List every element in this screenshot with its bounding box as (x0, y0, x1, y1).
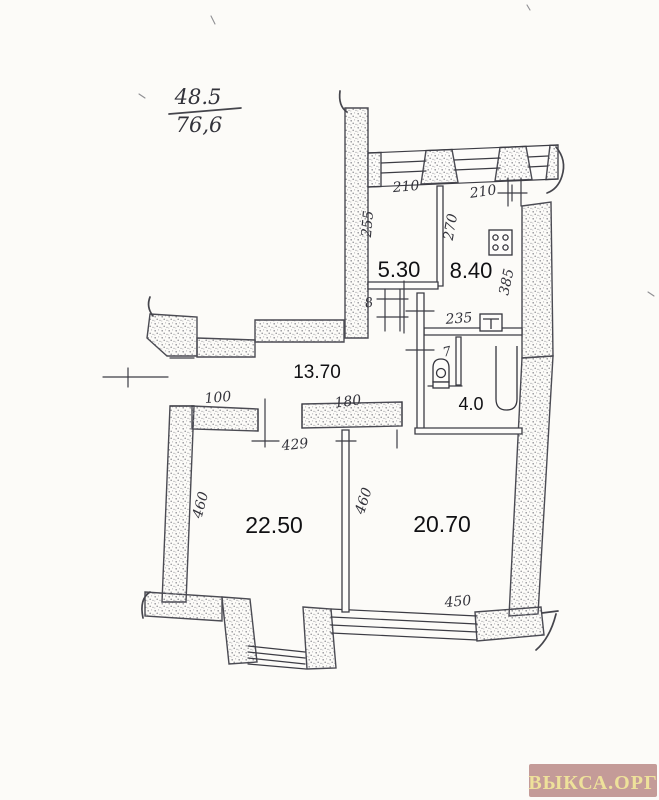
area-fraction: 48.5 76,6 (169, 85, 241, 137)
dim-living-room-depth: 460 (190, 490, 213, 521)
toilet-icon (433, 359, 449, 388)
dim-pantry-depth: 255 (359, 210, 377, 239)
bedroom-window-glazing (331, 609, 477, 640)
dim-kitchen-right-side: 385 (496, 267, 517, 297)
bathtub-icon (496, 346, 517, 410)
wc-divider (456, 337, 461, 385)
bathroom-bottom-wall (415, 428, 522, 434)
living-bedroom-partition (342, 430, 349, 612)
room-area-label-bathroom: 4.0 (458, 394, 483, 414)
room-area-label-bedroom: 20.70 (413, 511, 471, 537)
dim-kitchen-width: 235 (444, 310, 473, 328)
stove-icon (489, 230, 512, 255)
scanned-floor-plan-page: 210 210 255 270 385 235 7 8 100 180 429 … (0, 0, 659, 800)
room-area-label-living-room: 22.50 (245, 512, 303, 538)
sink-icon (480, 314, 502, 331)
floor-plan-svg: 210 210 255 270 385 235 7 8 100 180 429 … (0, 0, 659, 800)
room-area-label-hall: 13.70 (293, 362, 341, 383)
pantry-bottom-wall (368, 282, 438, 289)
dim-bedroom-width: 450 (443, 593, 472, 611)
area-fraction-denominator: 76,6 (176, 113, 223, 137)
dim-top-window-left: 210 (391, 178, 420, 196)
dim-living-room-width: 429 (280, 436, 309, 455)
scan-marks (139, 5, 654, 296)
dim-kitchen-depth: 270 (441, 212, 462, 242)
room-area-label-pantry: 5.30 (378, 257, 421, 282)
dim-entry-opening: 100 (204, 389, 232, 407)
watermark: ВЫКСА.ОРГ (528, 764, 657, 797)
dim-top-window-right: 210 (468, 182, 498, 202)
corridor-wall (417, 293, 424, 430)
dim-pantry-door: 8 (364, 295, 375, 311)
dim-wc-door: 7 (441, 344, 453, 361)
room-area-label-kitchen: 8.40 (450, 258, 493, 283)
watermark-text: ВЫКСА.ОРГ (528, 772, 657, 794)
dim-bedroom-depth: 460 (352, 486, 376, 517)
kitchen-bathroom-wall (424, 328, 522, 335)
area-fraction-numerator: 48.5 (174, 85, 222, 109)
dim-hall-opening: 180 (334, 392, 363, 411)
